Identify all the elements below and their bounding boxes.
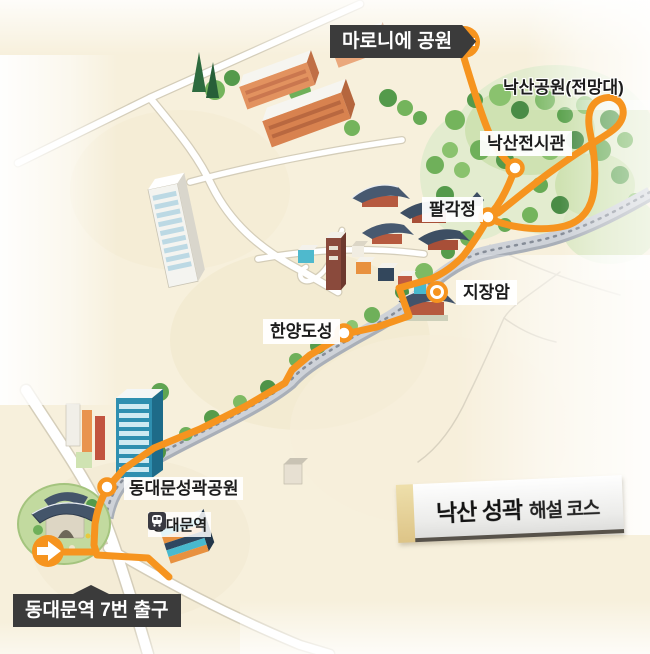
naksan-course-map: 마로니에 공원 낙산공원(전망대) 낙산전시관 팔각정 지장암 한양도성 동대문… (0, 0, 650, 654)
label-naksan-exhibition: 낙산전시관 (480, 131, 572, 156)
label-naksan-park: 낙산공원(전망대) (503, 79, 624, 96)
label-dongdaemun-fortress-park: 동대문성곽공원 (124, 477, 243, 500)
subway-station-icon (148, 512, 166, 530)
label-hanyang-fortress: 한양도성 (263, 319, 340, 344)
dongdaemun-station-marker: 동대문역 (148, 512, 211, 537)
waypoint-fortress-park (100, 480, 115, 495)
course-title-ribbon: 낙산 성곽 해설 코스 (396, 475, 625, 543)
course-title-main: 낙산 성곽 (435, 490, 522, 528)
label-jijangam: 지장암 (456, 280, 517, 305)
label-pointer-tab (71, 585, 111, 595)
label-maronie-park: 마로니에 공원 (330, 25, 476, 58)
label-palgakjeong: 팔각정 (422, 197, 483, 222)
course-title-sub: 해설 코스 (528, 493, 599, 523)
waypoint-jijangam (428, 283, 446, 301)
start-arrow-badge (32, 535, 64, 567)
waypoint-naksan-exhibition (508, 161, 523, 176)
label-exit7: 동대문역 7번 출구 (13, 594, 181, 627)
